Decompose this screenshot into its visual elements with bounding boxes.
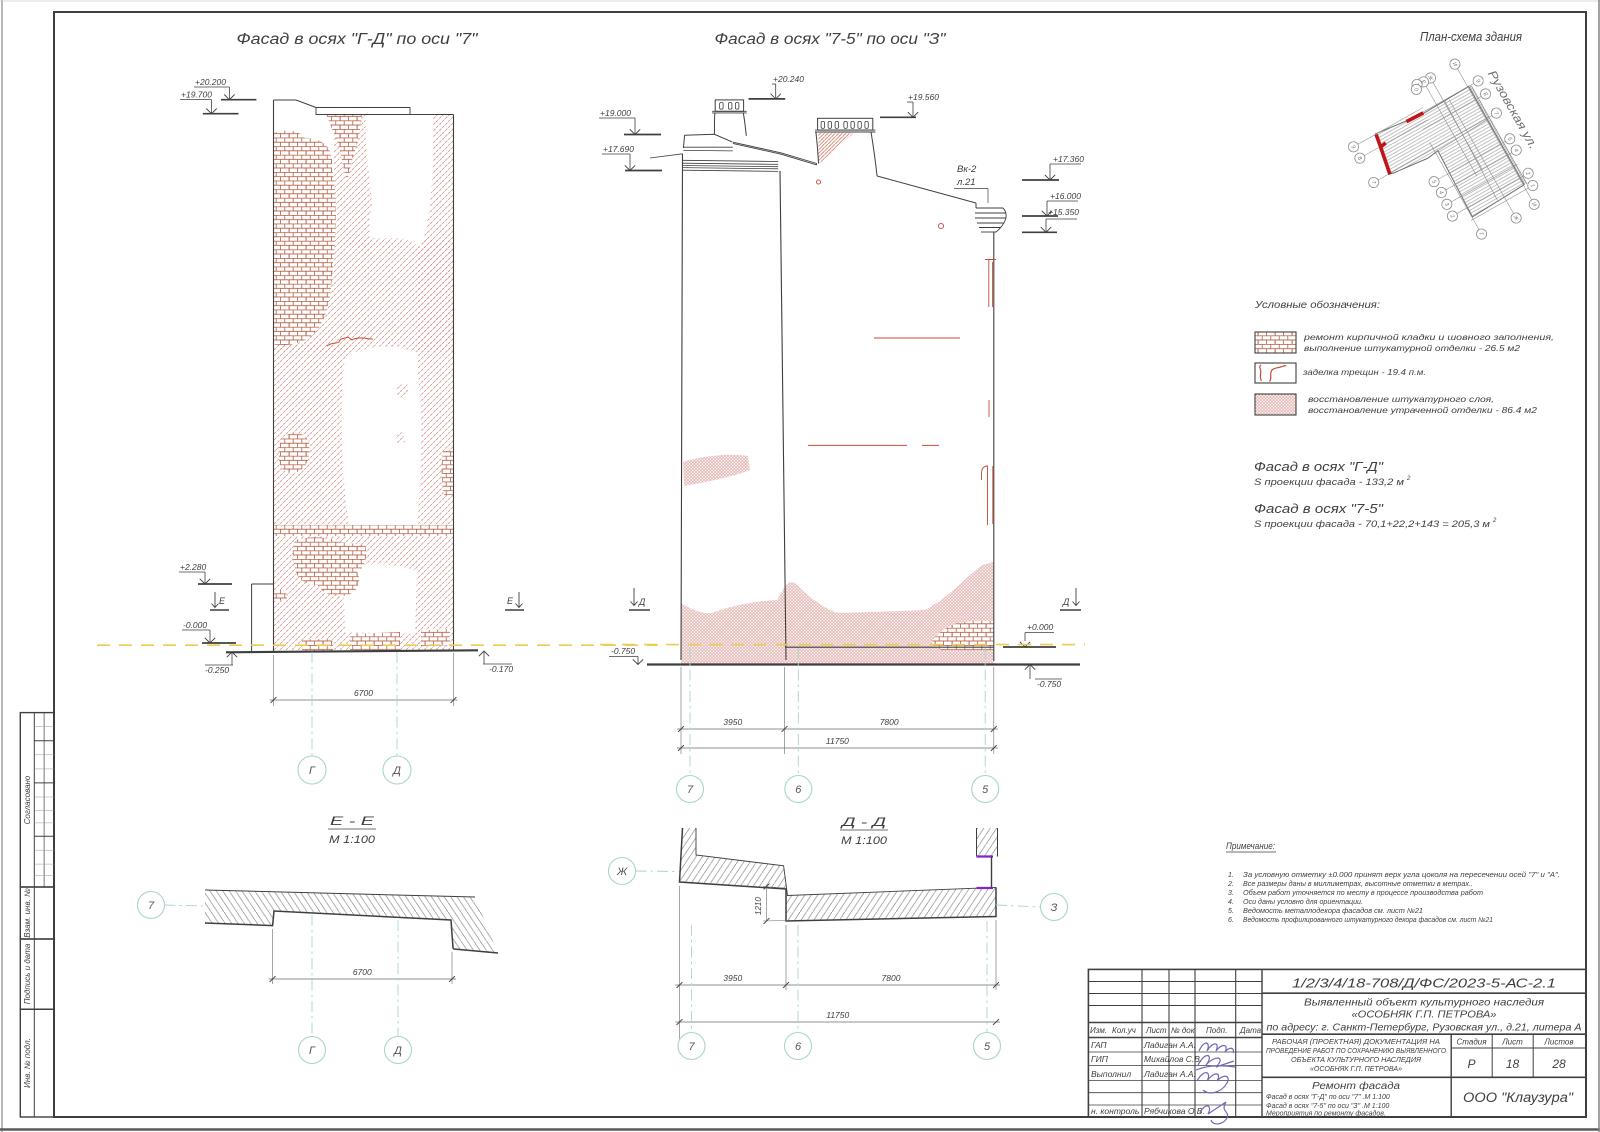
svg-text:«ОСОБНЯК Г.П. ПЕТРОВА»: «ОСОБНЯК Г.П. ПЕТРОВА» bbox=[1352, 1009, 1497, 1021]
svg-text:Ведомость профилированного шту: Ведомость профилированного штукатурного … bbox=[1243, 916, 1493, 924]
svg-text:л.21: л.21 bbox=[956, 177, 976, 188]
svg-text:Ж: Ж bbox=[616, 866, 628, 878]
svg-text:S проекции фасада - 70,1+22,2+: S проекции фасада - 70,1+22,2+143 = 205,… bbox=[1254, 519, 1490, 529]
svg-text:Объем работ уточняется по мест: Объем работ уточняется по месту в процес… bbox=[1243, 889, 1483, 897]
svg-text:Изм.: Изм. bbox=[1090, 1026, 1107, 1035]
svg-text:Листов: Листов bbox=[1543, 1038, 1573, 1047]
svg-text:+2.280: +2.280 bbox=[180, 562, 207, 572]
svg-text:+17.690: +17.690 bbox=[603, 144, 634, 154]
svg-text:Мероприятия по ремонту фасадов: Мероприятия по ремонту фасадов. bbox=[1266, 1110, 1386, 1118]
svg-text:Подп.: Подп. bbox=[1206, 1026, 1227, 1035]
svg-text:Согласовано: Согласовано bbox=[23, 775, 32, 824]
svg-text:Подпись и дата: Подпись и дата bbox=[23, 943, 32, 1004]
svg-text:4.: 4. bbox=[1228, 899, 1234, 906]
svg-text:ПРОВЕДЕНИЕ РАБОТ ПО СОХРАНЕНИЮ: ПРОВЕДЕНИЕ РАБОТ ПО СОХРАНЕНИЮ ВЫЯВЛЕННО… bbox=[1266, 1048, 1447, 1055]
svg-text:7: 7 bbox=[688, 1041, 695, 1053]
svg-text:Взам. инв. №: Взам. инв. № bbox=[23, 888, 32, 938]
svg-text:Вк-2: Вк-2 bbox=[957, 164, 977, 175]
svg-text:План-схема здания: План-схема здания bbox=[1420, 29, 1522, 44]
svg-text:11750: 11750 bbox=[826, 736, 849, 746]
svg-text:восстановление штукатурного сл: восстановление штукатурного слоя, bbox=[1308, 394, 1494, 404]
svg-text:Условные обозначения:: Условные обозначения: bbox=[1254, 299, 1380, 311]
svg-text:Д: Д bbox=[638, 597, 646, 607]
svg-text:№ док: № док bbox=[1171, 1026, 1196, 1035]
svg-text:н. контроль: н. контроль bbox=[1091, 1106, 1139, 1116]
svg-text:-0.000: -0.000 bbox=[183, 620, 207, 630]
svg-text:Выявленный объект культурного: Выявленный объект культурного наследия bbox=[1304, 997, 1544, 1009]
svg-text:+20.240: +20.240 bbox=[773, 74, 804, 84]
svg-text:РАБОЧАЯ (ПРОЕКТНАЯ) ДОКУМЕНТАЦ: РАБОЧАЯ (ПРОЕКТНАЯ) ДОКУМЕНТАЦИЯ НА bbox=[1272, 1039, 1440, 1046]
svg-text:ГАП: ГАП bbox=[1091, 1040, 1107, 1050]
svg-text:Фасад в осях "7-5" по оси "З": Фасад в осях "7-5" по оси "З" bbox=[715, 31, 948, 48]
svg-text:11750: 11750 bbox=[826, 1010, 849, 1020]
svg-text:Инв. № подл.: Инв. № подл. bbox=[23, 1038, 32, 1088]
svg-text:1210: 1210 bbox=[754, 897, 763, 915]
svg-text:-0.750: -0.750 bbox=[611, 646, 635, 656]
svg-text:1.: 1. bbox=[1228, 872, 1234, 879]
svg-text:Фасад в осях "7-5" по оси "З": Фасад в осях "7-5" по оси "З" .М 1:100 bbox=[1266, 1102, 1389, 1110]
svg-text:Д: Д bbox=[392, 1045, 402, 1057]
svg-text:Фасад в осях "Г-Д" по оси "7": Фасад в осях "Г-Д" по оси "7" bbox=[237, 31, 480, 48]
svg-text:ГИП: ГИП bbox=[1091, 1054, 1109, 1064]
svg-text:-0.750: -0.750 bbox=[1037, 679, 1061, 689]
svg-text:За условную отметку ±0.000 при: За условную отметку ±0.000 принят верх у… bbox=[1243, 871, 1560, 879]
svg-text:E: E bbox=[219, 596, 226, 606]
svg-text:заделка трещин - 19.4 п.м.: заделка трещин - 19.4 п.м. bbox=[1302, 367, 1426, 377]
svg-text:Примечание:: Примечание: bbox=[1226, 841, 1275, 852]
svg-text:Ладиган А.А.: Ладиган А.А. bbox=[1143, 1069, 1196, 1079]
svg-text:Ладиган А.А.: Ладиган А.А. bbox=[1143, 1040, 1196, 1050]
svg-text:6: 6 bbox=[795, 1041, 802, 1053]
svg-text:Кол.уч: Кол.уч bbox=[1112, 1026, 1136, 1035]
svg-text:7800: 7800 bbox=[880, 717, 899, 727]
svg-text:Лист: Лист bbox=[1501, 1038, 1523, 1047]
svg-text:+16.000: +16.000 bbox=[1050, 191, 1081, 201]
svg-text:«ОСОБНЯК Г.П. ПЕТРОВА»: «ОСОБНЯК Г.П. ПЕТРОВА» bbox=[1310, 1066, 1402, 1073]
svg-text:Г: Г bbox=[309, 1045, 316, 1057]
svg-text:+19.560: +19.560 bbox=[908, 92, 939, 102]
svg-text:3.: 3. bbox=[1228, 890, 1234, 897]
svg-text:ремонт кирпичной кладки и шовн: ремонт кирпичной кладки и шовного заполн… bbox=[1303, 332, 1554, 342]
svg-text:ОБЪЕКТА КУЛЬТУРНОГО НАСЛЕДИЯ: ОБЪЕКТА КУЛЬТУРНОГО НАСЛЕДИЯ bbox=[1291, 1057, 1421, 1064]
svg-text:7: 7 bbox=[687, 784, 694, 796]
svg-text:Выполнил: Выполнил bbox=[1091, 1069, 1131, 1079]
svg-text:Ремонт фасада: Ремонт фасада bbox=[1312, 1080, 1400, 1092]
svg-text:3950: 3950 bbox=[723, 973, 742, 983]
svg-text:6700: 6700 bbox=[354, 688, 373, 698]
svg-text:3950: 3950 bbox=[723, 717, 742, 727]
svg-text:Г: Г bbox=[309, 765, 316, 777]
svg-text:+15.350: +15.350 bbox=[1048, 207, 1079, 217]
svg-text:E: E bbox=[507, 596, 514, 606]
svg-text:Оси даны условно для ориентаци: Оси даны условно для ориентации. bbox=[1243, 898, 1363, 906]
svg-text:2.: 2. bbox=[1227, 881, 1234, 888]
svg-text:Все размеры даны в миллиметрах: Все размеры даны в миллиметрах, высотные… bbox=[1243, 880, 1473, 888]
svg-text:5: 5 bbox=[984, 1041, 991, 1053]
svg-text:7: 7 bbox=[148, 900, 155, 912]
svg-text:Д: Д bbox=[391, 765, 401, 777]
svg-text:Рябчикова О.В.: Рябчикова О.В. bbox=[1144, 1106, 1205, 1116]
svg-text:Фасад в осях "7-5": Фасад в осях "7-5" bbox=[1254, 502, 1384, 516]
svg-text:восстановление утраченной отде: восстановление утраченной отделки - 86.4… bbox=[1308, 405, 1537, 415]
svg-text:2: 2 bbox=[1492, 518, 1497, 524]
svg-text:З: З bbox=[1051, 902, 1058, 914]
svg-text:2: 2 bbox=[1406, 476, 1411, 482]
svg-text:+0.000: +0.000 bbox=[1027, 622, 1054, 632]
svg-text:E - E: E - E bbox=[330, 814, 376, 828]
svg-text:+19.000: +19.000 bbox=[600, 108, 631, 118]
svg-text:6.: 6. bbox=[1228, 917, 1234, 924]
svg-text:-0.250: -0.250 bbox=[205, 665, 229, 675]
svg-text:Д: Д bbox=[1062, 597, 1070, 607]
svg-text:Стадия: Стадия bbox=[1457, 1038, 1488, 1047]
svg-text:-0.170: -0.170 bbox=[489, 664, 513, 674]
svg-text:5.: 5. bbox=[1228, 908, 1234, 915]
svg-text:1/2/3/4/18-708/Д/ФС/2023-5-АС-: 1/2/3/4/18-708/Д/ФС/2023-5-АС-2.1 bbox=[1292, 976, 1556, 991]
svg-text:6: 6 bbox=[795, 784, 802, 796]
svg-text:28: 28 bbox=[1551, 1057, 1566, 1071]
svg-text:18: 18 bbox=[1506, 1057, 1520, 1071]
svg-text:М 1:100: М 1:100 bbox=[841, 835, 888, 847]
svg-text:S проекции фасада - 133,2 м: S проекции фасада - 133,2 м bbox=[1254, 477, 1404, 487]
svg-text:+20.200: +20.200 bbox=[195, 77, 226, 87]
svg-text:5: 5 bbox=[982, 784, 989, 796]
svg-text:Лист: Лист bbox=[1145, 1026, 1167, 1035]
svg-text:Фасад в осях "Г-Д" по оси "7": Фасад в осях "Г-Д" по оси "7" .М 1:100 bbox=[1266, 1093, 1390, 1101]
svg-text:Р: Р bbox=[1467, 1057, 1475, 1071]
svg-text:по адресу: г. Санкт-Петербург,: по адресу: г. Санкт-Петербург, Рузовская… bbox=[1267, 1022, 1582, 1034]
svg-text:6700: 6700 bbox=[353, 967, 372, 977]
svg-text:Д - Д: Д - Д bbox=[839, 815, 887, 829]
svg-text:+19.700: +19.700 bbox=[181, 90, 212, 100]
svg-text:Ведомость металлодекора фасадо: Ведомость металлодекора фасадов см. лист… bbox=[1243, 907, 1423, 915]
svg-text:М 1:100: М 1:100 bbox=[329, 834, 376, 846]
svg-text:7800: 7800 bbox=[882, 973, 901, 983]
svg-text:Фасад в осях "Г-Д": Фасад в осях "Г-Д" bbox=[1254, 460, 1384, 474]
svg-text:+17.360: +17.360 bbox=[1053, 154, 1084, 164]
svg-text:Дата: Дата bbox=[1239, 1026, 1262, 1035]
svg-text:выполнение штукатурной отделки: выполнение штукатурной отделки - 26.5 м2 bbox=[1304, 343, 1520, 353]
svg-text:ООО "Клаузура": ООО "Клаузура" bbox=[1463, 1090, 1574, 1105]
svg-text:Михайлов С.В.: Михайлов С.В. bbox=[1144, 1054, 1202, 1064]
